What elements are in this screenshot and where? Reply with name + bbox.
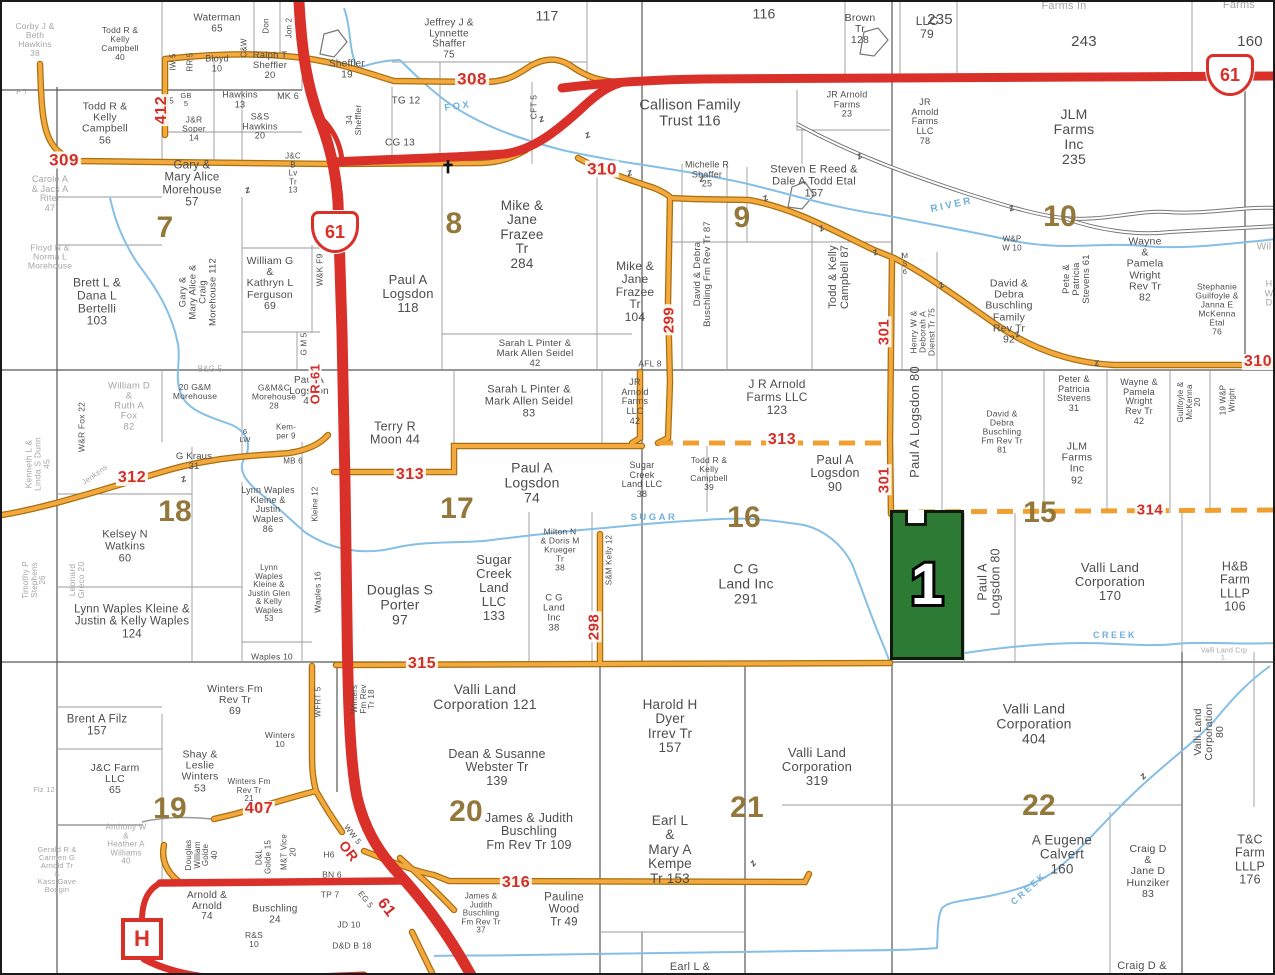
survey-hatch-mark: z xyxy=(1094,358,1101,369)
parcel-label: Craig D & xyxy=(1117,961,1166,973)
parcel-label: Waterman 65 xyxy=(193,13,240,34)
parcel-label: Winters Fm Rev Tr 69 xyxy=(207,684,263,718)
us-61-shield-icon: 61 xyxy=(1206,54,1254,96)
parcel-label: Shay & Leslie Winters 53 xyxy=(182,750,219,795)
route-number-label: 313 xyxy=(766,432,798,448)
route-number-label: 301 xyxy=(877,317,892,348)
parcel-label: W&P W 10 xyxy=(1002,235,1021,252)
parcel-label: David & Debra Buschling Fm Rev Tr 87 xyxy=(693,221,713,327)
parcel-label: Jon 2 xyxy=(286,18,295,39)
parcel-label: Todd R & Kelly Campbell 39 xyxy=(690,456,728,492)
parcel-label: Waples 10 xyxy=(251,652,293,661)
parcel-label: Callison Family Trust 116 xyxy=(639,99,740,130)
parcel-label: David & Debra Buschling Family Rev Tr 92 xyxy=(985,278,1032,345)
parcel-label: 160 xyxy=(1237,34,1263,50)
parcel-label: Mike & Jane Frazee Tr 284 xyxy=(500,199,543,271)
parcel-label: BN 6 xyxy=(322,870,342,879)
parcel-label: Jenkens xyxy=(81,463,110,486)
parcel-label: 34 Sheffler xyxy=(345,105,363,136)
route-number-label: 315 xyxy=(406,656,438,672)
route-number-label: 312 xyxy=(116,470,148,486)
parcel-label: Farms xyxy=(1223,0,1255,12)
parcel-label: D&D B 18 xyxy=(332,941,371,950)
parcel-label: EG 5 xyxy=(356,890,374,910)
highlighted-parcel-1[interactable]: 1 xyxy=(890,510,964,660)
parcel-label: JLM Farms Inc 235 xyxy=(1054,107,1095,167)
parcel-label: MB 6 xyxy=(283,458,302,467)
parcel-label: Pete & Patricia Stevens 61 xyxy=(1062,254,1092,304)
parcel-label: J R Arnold Farms LLC 123 xyxy=(746,378,807,416)
parcel-label: WFRT 5 xyxy=(315,687,324,718)
parcel-label: Valli Land Corporation 80 xyxy=(1193,703,1227,760)
us-61-shield-icon: 61 xyxy=(311,211,359,253)
parcel-label: Paul A Logsdon 80 xyxy=(908,366,922,478)
parcel-label: Guilfoyle & McKenna 20 xyxy=(1177,382,1203,423)
parcel-label: Gary & Mary Alice Morehouse 57 xyxy=(162,159,221,208)
parcel-label: Timothy P Stephens 26 xyxy=(22,561,48,599)
parcel-label: T&C Farm LLLP 176 xyxy=(1235,833,1265,887)
parcel-label: S&S Hawkins 20 xyxy=(242,113,277,142)
route-number-label: 316 xyxy=(500,875,532,891)
route-number-label: 314 xyxy=(1135,503,1166,518)
parcel-label: P 7 xyxy=(16,88,28,96)
parcel-label: Mike & Jane Frazee Tr 104 xyxy=(616,260,655,324)
route-number-label: 310 xyxy=(585,161,619,178)
shield-number: 61 xyxy=(1220,65,1240,86)
waterway-label: CREEK xyxy=(1093,631,1137,641)
parcel-label: JR Arnold Farms 23 xyxy=(827,91,868,120)
parcel-label: C G Land Inc 291 xyxy=(718,562,773,607)
parcel-label: Brett L & Dana L Bertelli 103 xyxy=(73,276,121,327)
survey-hatch-mark: z xyxy=(244,185,253,197)
parcel-label: TG 12 xyxy=(392,97,421,108)
route-number-label: 299 xyxy=(662,305,677,336)
parcel-label: Paul A Logsdon 80 xyxy=(977,548,1004,615)
section-number: 20 xyxy=(449,796,483,828)
parcel-label: Kem- per 9 xyxy=(276,423,296,440)
parcel-label: Douglas William Golde 40 xyxy=(185,840,219,871)
parcel-label: Winters 10 xyxy=(265,731,295,749)
parcel-label: William D & Ruth A Fox 82 xyxy=(108,382,150,433)
parcel-label: Ralph T Sheffler 20 xyxy=(253,51,288,81)
parcel-label: G M 5 xyxy=(301,333,310,356)
parcel-label: Steven E Reed & Dale A Todd Etal 157 xyxy=(770,164,857,199)
parcel-label: IW 5 xyxy=(170,53,179,70)
parcel-label: Buschling 24 xyxy=(252,904,297,925)
parcel-label: D&L Golde 15 xyxy=(255,840,272,874)
highlight-number: 1 xyxy=(911,556,943,614)
route-number-label: 407 xyxy=(243,801,275,817)
parcel-label: J&C Farm LLC 65 xyxy=(91,763,140,797)
waterway-label: RIVER xyxy=(930,196,974,215)
parcel-label: Gerald R & Carmen G Arnold Tr & Kass Gav… xyxy=(37,846,76,894)
parcel-label: Kelsey N Watkins 60 xyxy=(102,529,148,564)
parcel-label: Valli Land Corporation 319 xyxy=(782,746,852,788)
parcel-label: Paul A Logsdon 74 xyxy=(504,461,559,506)
parcel-label: Valli Land Corporation 170 xyxy=(1075,561,1145,603)
parcel-label: JR Arnold Farms LLC 78 xyxy=(911,98,938,146)
parcel-label: Terry R Moon 44 xyxy=(370,421,420,448)
plat-map-canvas[interactable]: Corby J & Beth Hawkins 38Todd R & Kelly … xyxy=(0,0,1275,975)
survey-hatch-mark: z xyxy=(538,114,547,126)
parcel-label: S&M Kelly 12 xyxy=(606,535,615,585)
parcel-label: Lynn Waples Kleine & Justin Glen & Kelly… xyxy=(248,564,290,624)
parcel-label: Henry W & Deborah A Dienst Tr 75 xyxy=(909,308,936,356)
parcel-label: Flz 12 xyxy=(33,786,55,794)
section-number: 10 xyxy=(1043,201,1077,233)
parcel-label: Sheffler 19 xyxy=(329,59,365,80)
parcel-label: Todd & Kelly Campbell 87 xyxy=(828,245,852,309)
parcel-label: JLM Farms Inc 92 xyxy=(1062,442,1093,487)
parcel-label: Harold H Dyer Irrev Tr 157 xyxy=(643,698,698,756)
survey-hatch-mark: z xyxy=(871,247,881,259)
parcel-label: RR 5 xyxy=(187,52,196,71)
section-number: 16 xyxy=(727,502,761,534)
parcel-label: Todd R & Kelly Campbell 56 xyxy=(82,102,128,147)
parcel-label: Anthony W & Heather A Williams 40 xyxy=(106,824,147,867)
survey-hatch-mark: z xyxy=(583,130,592,142)
highway-h-marker: H xyxy=(121,918,163,960)
parcel-label: M&T Vice 20 xyxy=(280,834,297,870)
parcel-label: JD 10 xyxy=(337,920,360,929)
parcel-label: Waples 16 xyxy=(313,571,322,613)
survey-hatch-mark: z xyxy=(626,168,634,180)
parcel-label: Douglas S Porter 97 xyxy=(367,583,433,628)
parcel-label: H&B Farm LLLP 106 xyxy=(1220,560,1250,614)
parcel-label: 243 xyxy=(1071,34,1097,50)
parcel-label: Kleine 12 xyxy=(312,486,321,521)
section-number: 22 xyxy=(1022,790,1056,822)
parcel-label: TP 7 xyxy=(321,890,340,899)
parcel-label: 20 G&M Morehouse xyxy=(173,383,217,401)
parcel-label: H6 xyxy=(323,850,334,859)
parcel-label: Valli Land Corporation 404 xyxy=(996,702,1071,747)
parcel-label: Paul A Logsdon 90 xyxy=(810,454,859,494)
parcel-label: Sarah L Pinter & Mark Allen Seidel 83 xyxy=(485,384,573,419)
parcel-label: R&S 10 xyxy=(245,931,263,949)
section-number: 8 xyxy=(446,208,463,240)
parcel-label: William G & Kathryn L Ferguson 69 xyxy=(247,256,294,312)
parcel-label: W&K F9 xyxy=(315,254,324,287)
church-icon: ✝ xyxy=(441,158,455,178)
parcel-label: Sugar Creek Land LLC 38 xyxy=(622,461,663,500)
parcel-label: M S 6 xyxy=(902,252,908,276)
route-number-label: 298 xyxy=(587,612,602,643)
parcel-label: Earl L & xyxy=(670,962,710,974)
parcel-label: Brent A Filz 157 xyxy=(67,714,128,739)
section-number: 17 xyxy=(440,493,474,525)
parcel-label: James & Judith Buschling Fm Rev Tr 37 xyxy=(461,893,500,936)
parcel-label: James & Judith Buschling Fm R­ev Tr 109 xyxy=(485,812,573,852)
section-number: 19 xyxy=(153,793,187,825)
parcel-label: G Kraus 31 xyxy=(176,452,212,472)
parcel-label: W&R Fox 22 xyxy=(77,402,86,452)
section-number: 21 xyxy=(730,792,764,824)
waterway-label: CREEK xyxy=(1009,871,1048,908)
parcel-label: C&W xyxy=(241,38,250,57)
route-number-label: 301 xyxy=(877,465,892,496)
parcel-label: Milton N & Doris M Krueger Tr 38 xyxy=(540,527,579,572)
parcel-label: Wil xyxy=(1257,243,1271,254)
parcel-label: 19 W&P Wright xyxy=(1219,385,1236,416)
parcel-label: AFL 8 xyxy=(638,359,661,368)
parcel-label: CG 13 xyxy=(385,139,415,150)
parcel-label: C G Land Inc 38 xyxy=(543,594,565,635)
section-number: 18 xyxy=(158,496,192,528)
section-number: 7 xyxy=(157,212,174,244)
parcel-label: Wayne & Pamela Wright Rev Tr 82 xyxy=(1127,236,1164,303)
survey-hatch-mark: z xyxy=(1138,771,1149,782)
section-number: 15 xyxy=(1023,497,1057,529)
parcel-label: Earl L & Mary A Kempe Tr 153 xyxy=(648,814,692,886)
parcel-label: Hawkins 13 xyxy=(222,90,257,109)
parcel-label: Brown Tr 128 xyxy=(845,13,876,47)
parcel-label: Don xyxy=(263,18,272,33)
parcel-label: Stephanie Guilfoyle & Janna E McKenna Et… xyxy=(1195,283,1238,338)
parcel-label: J&R Soper 14 xyxy=(182,115,206,142)
parcel-label: G&M&C Morehouse 28 xyxy=(252,383,296,410)
section-number: 9 xyxy=(734,202,751,234)
parcel-label: Paul A Logsdon 118 xyxy=(382,273,433,315)
survey-hatch-mark: z xyxy=(748,859,760,870)
parcel-label: Arnold & Arnold 74 xyxy=(187,891,227,923)
parcel-label: Craig D & Jane D Hunziker 83 xyxy=(1126,844,1169,900)
parcel-label: Pauline Wood Tr 49 xyxy=(544,892,584,929)
parcel-label: LLC 79 xyxy=(916,15,939,41)
parcel-label: Kenneth L & Linda S Dunn 45 xyxy=(24,437,51,491)
parcel-label: Sugar Creek Land LLC 133 xyxy=(476,553,512,623)
parcel-label: Winters Fm Rev Tr 18 xyxy=(351,684,377,713)
parcel-label: 6 LW xyxy=(239,428,250,444)
survey-hatch-mark: z xyxy=(179,474,188,486)
route-number-label: 308 xyxy=(455,71,489,88)
survey-hatch-mark: z xyxy=(855,151,865,163)
h-marker-letter: H xyxy=(134,926,150,952)
parcel-label: David & Debra Buschling Fm Rev Tr 81 xyxy=(981,409,1022,454)
parcel-label: Carole A & Jack A Riter 47 xyxy=(32,175,69,214)
survey-hatch-mark: z xyxy=(937,280,947,292)
waterway-label: SUGAR xyxy=(631,513,678,523)
parcel-label: Dean & Susanne Webster Tr 139 xyxy=(448,748,545,788)
parcel-label: 116 xyxy=(753,7,776,22)
parcel-label: Sarah L Pinter & Mark Allen Seidel 42 xyxy=(497,339,574,369)
route-number-label: 309 xyxy=(47,152,81,169)
survey-hatch-mark: z xyxy=(1008,203,1017,215)
parcel-label: JR Arnold Farms LLC 42 xyxy=(621,378,648,426)
parcel-label: Todd R & Kelly Campbell 40 xyxy=(101,26,139,62)
route-number-label: 61 xyxy=(373,894,400,922)
parcel-label: Michelle R Shaffer 25 xyxy=(685,161,729,190)
parcel-label: Wayne & Pamela Wright Rev Tr 42 xyxy=(1120,378,1158,426)
parcel-label: Bloyd 10 xyxy=(205,54,229,73)
shield-number: 61 xyxy=(325,222,345,243)
parcel-label: Valli Land Crp 1. xyxy=(1200,648,1249,663)
route-number-label: 412 xyxy=(154,94,170,126)
parcel-label: Leonard Greco 20 xyxy=(68,562,86,599)
route-number-label: 313 xyxy=(394,467,426,483)
parcel-label: Valli Land Corporation 121 xyxy=(433,682,536,712)
parcel-notch xyxy=(905,510,927,526)
parcel-label: Farms In xyxy=(1042,1,1087,13)
waterway-label: FOX xyxy=(444,100,472,114)
parcel-label: MK 6 xyxy=(277,92,299,102)
parcel-label: Gary & Mary Alice & Craig Morehouse 112 xyxy=(179,258,220,326)
parcel-label: Jeffrey J & Lynnette Shaffer 75 xyxy=(424,19,473,62)
parcel-label: Floyd N & Norma L Morehouse xyxy=(28,243,72,270)
parcel-label: Peter & Patricia Stevens 31 xyxy=(1057,375,1091,414)
survey-hatch-mark: z xyxy=(817,223,827,235)
parcel-label: Lynn Waples Kleine & Justin & Kelly Wapl… xyxy=(74,604,190,641)
parcel-label: 117 xyxy=(536,9,559,24)
parcel-label: B&G 5 xyxy=(198,366,223,375)
parcel-label: Lynn Waples Kleine & Justin Waples 86 xyxy=(241,486,295,534)
route-number-label: 310 xyxy=(1242,354,1274,370)
route-number-label: OR-61 xyxy=(309,362,322,407)
parcel-label: J&C B Lv Tr 13 xyxy=(285,153,301,196)
parcel-label: H W D xyxy=(1265,280,1274,309)
parcel-label: Corby J & Beth Hawkins 38 xyxy=(15,22,54,58)
parcel-label: GB 5 xyxy=(180,92,191,108)
